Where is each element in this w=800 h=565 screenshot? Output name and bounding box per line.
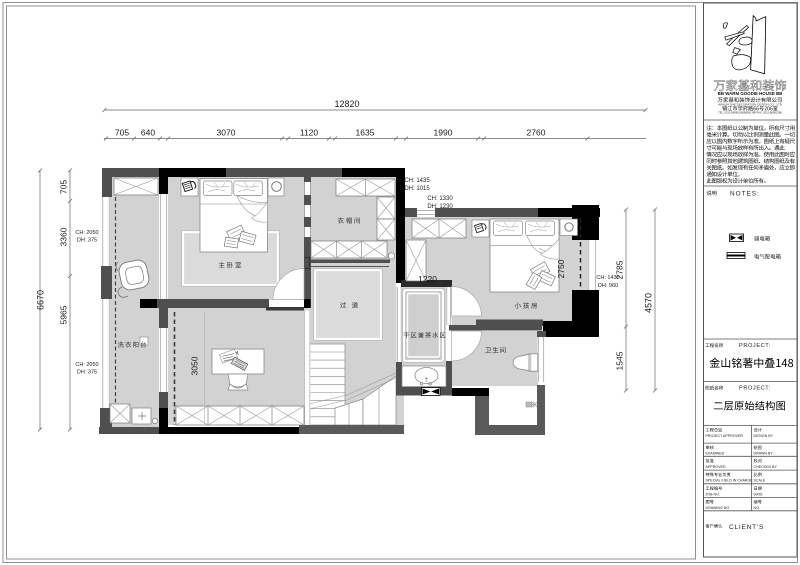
svg-text:4570: 4570 xyxy=(644,293,654,313)
svg-text:CH: 1330: CH: 1330 xyxy=(427,196,453,202)
svg-text:CH: 2050: CH: 2050 xyxy=(75,230,98,236)
svg-text:1120: 1120 xyxy=(300,128,319,138)
svg-text:2750: 2750 xyxy=(556,259,566,278)
svg-text:NO.: NO. xyxy=(754,506,760,510)
svg-text:1635: 1635 xyxy=(356,128,375,138)
svg-text:CH: 1430: CH: 1430 xyxy=(596,275,619,281)
svg-text:SCALE: SCALE xyxy=(754,479,766,483)
svg-text:6670: 6670 xyxy=(36,290,46,310)
svg-text:1545: 1545 xyxy=(615,351,625,370)
svg-text:BB WARM GOODIE HOUSE BB: BB WARM GOODIE HOUSE BB xyxy=(718,91,783,96)
svg-text:1990: 1990 xyxy=(434,128,453,138)
svg-text:2760: 2760 xyxy=(527,128,546,138)
svg-text:SPECIAL FIELD IN CHARGE: SPECIAL FIELD IN CHARGE xyxy=(706,479,754,483)
svg-text:DATE: DATE xyxy=(754,492,764,496)
svg-text:DH: 960: DH: 960 xyxy=(598,283,618,289)
svg-text:DH: 375: DH: 375 xyxy=(77,238,97,244)
svg-text:12820: 12820 xyxy=(334,99,359,109)
svg-text:APPROVED: APPROVED xyxy=(706,465,726,469)
svg-text:3360: 3360 xyxy=(59,227,69,246)
svg-text:3050: 3050 xyxy=(190,356,200,375)
svg-text:1220: 1220 xyxy=(418,274,437,284)
svg-text:3070: 3070 xyxy=(217,128,236,138)
svg-text:705: 705 xyxy=(115,128,129,138)
svg-text:CHECKED BY: CHECKED BY xyxy=(754,465,778,469)
svg-text:CH: 1435: CH: 1435 xyxy=(404,178,430,184)
svg-text:JOB NO.: JOB NO. xyxy=(706,492,720,496)
svg-text:PROJECT:: PROJECT: xyxy=(739,343,771,349)
svg-text:DRAWN BY: DRAWN BY xyxy=(754,452,774,456)
svg-text:PROJECT APPROVER: PROJECT APPROVER xyxy=(706,434,744,438)
svg-text:DESIGN BY: DESIGN BY xyxy=(754,434,774,438)
svg-text:WANJIAJIHE DECORATION DESIGN C: WANJIAJIHE DECORATION DESIGN CO., LTD xyxy=(718,102,783,106)
svg-text:NOTES:: NOTES: xyxy=(730,191,760,198)
svg-text:TEL: 0511-88990188/88991388: TEL: 0511-88990188/88991388 FAX: 0511-88… xyxy=(718,111,782,115)
svg-text:5965: 5965 xyxy=(59,305,69,324)
svg-text:DRAWING NO.: DRAWING NO. xyxy=(706,506,731,510)
svg-text:EXAMINED: EXAMINED xyxy=(706,452,725,456)
svg-text:CH: 2050: CH: 2050 xyxy=(75,362,98,368)
svg-text:DH: 1015: DH: 1015 xyxy=(404,186,430,192)
svg-text:CLIENT'S: CLIENT'S xyxy=(729,524,764,531)
svg-text:DH: 375: DH: 375 xyxy=(77,370,97,376)
svg-text:705: 705 xyxy=(59,180,69,194)
svg-text:640: 640 xyxy=(141,128,155,138)
svg-text:PROJECT:: PROJECT: xyxy=(739,386,771,392)
